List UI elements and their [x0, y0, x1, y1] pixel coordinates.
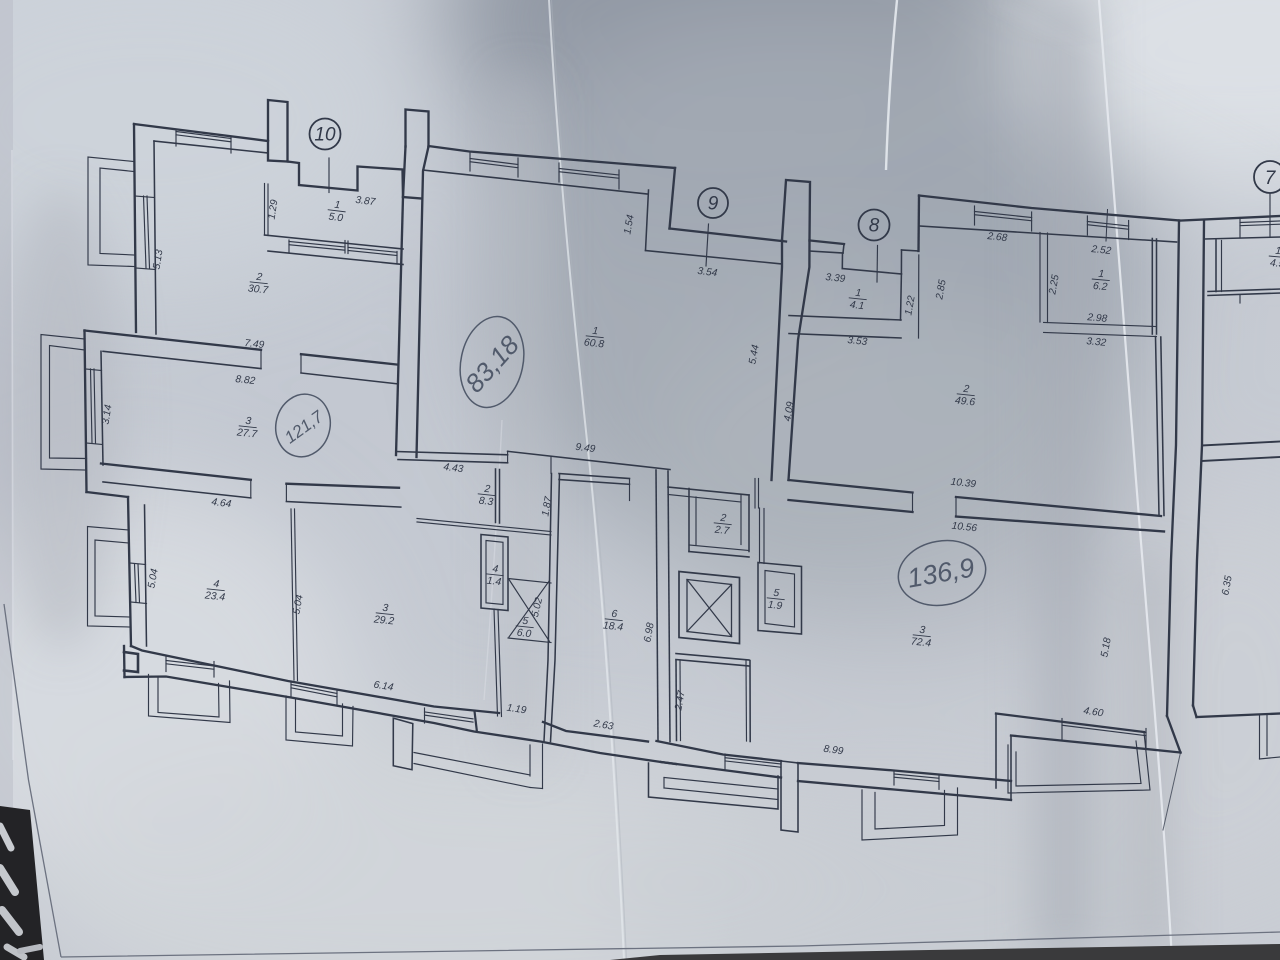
svg-text:8.3: 8.3	[478, 496, 494, 508]
svg-text:7.49: 7.49	[244, 338, 265, 351]
svg-text:2: 2	[483, 484, 491, 496]
svg-text:2.52: 2.52	[1090, 244, 1112, 257]
svg-text:23.4: 23.4	[203, 590, 225, 603]
svg-text:1: 1	[592, 326, 599, 338]
svg-text:49.6: 49.6	[954, 395, 975, 408]
svg-text:5.0: 5.0	[328, 212, 344, 225]
svg-text:2: 2	[719, 513, 727, 525]
svg-text:3.53: 3.53	[847, 335, 868, 348]
svg-text:4.5: 4.5	[1269, 258, 1280, 270]
svg-text:9: 9	[708, 194, 719, 215]
svg-text:30.7: 30.7	[247, 283, 269, 296]
svg-text:8.82: 8.82	[235, 374, 256, 387]
svg-text:1.4: 1.4	[486, 576, 502, 588]
svg-text:2.68: 2.68	[986, 231, 1008, 244]
svg-text:1: 1	[855, 288, 862, 300]
svg-text:27.7: 27.7	[235, 427, 258, 440]
svg-text:8: 8	[869, 216, 880, 237]
svg-text:60.8: 60.8	[583, 337, 604, 350]
svg-text:1.9: 1.9	[767, 600, 783, 612]
svg-text:2: 2	[962, 384, 970, 396]
svg-text:3.39: 3.39	[825, 272, 846, 285]
svg-text:10: 10	[314, 125, 336, 146]
svg-text:2.98: 2.98	[1086, 312, 1108, 325]
svg-text:7: 7	[1265, 168, 1277, 189]
svg-text:2: 2	[255, 272, 263, 284]
svg-text:3.32: 3.32	[1086, 336, 1107, 349]
svg-text:1: 1	[1275, 246, 1280, 257]
svg-text:29.2: 29.2	[372, 614, 394, 627]
svg-text:4.1: 4.1	[849, 300, 865, 312]
svg-text:2.7: 2.7	[713, 525, 731, 538]
svg-text:6.0: 6.0	[516, 628, 532, 640]
svg-text:6.2: 6.2	[1092, 281, 1108, 293]
svg-text:1: 1	[1098, 269, 1105, 280]
svg-text:72.4: 72.4	[910, 636, 931, 649]
svg-text:18.4: 18.4	[602, 620, 623, 633]
